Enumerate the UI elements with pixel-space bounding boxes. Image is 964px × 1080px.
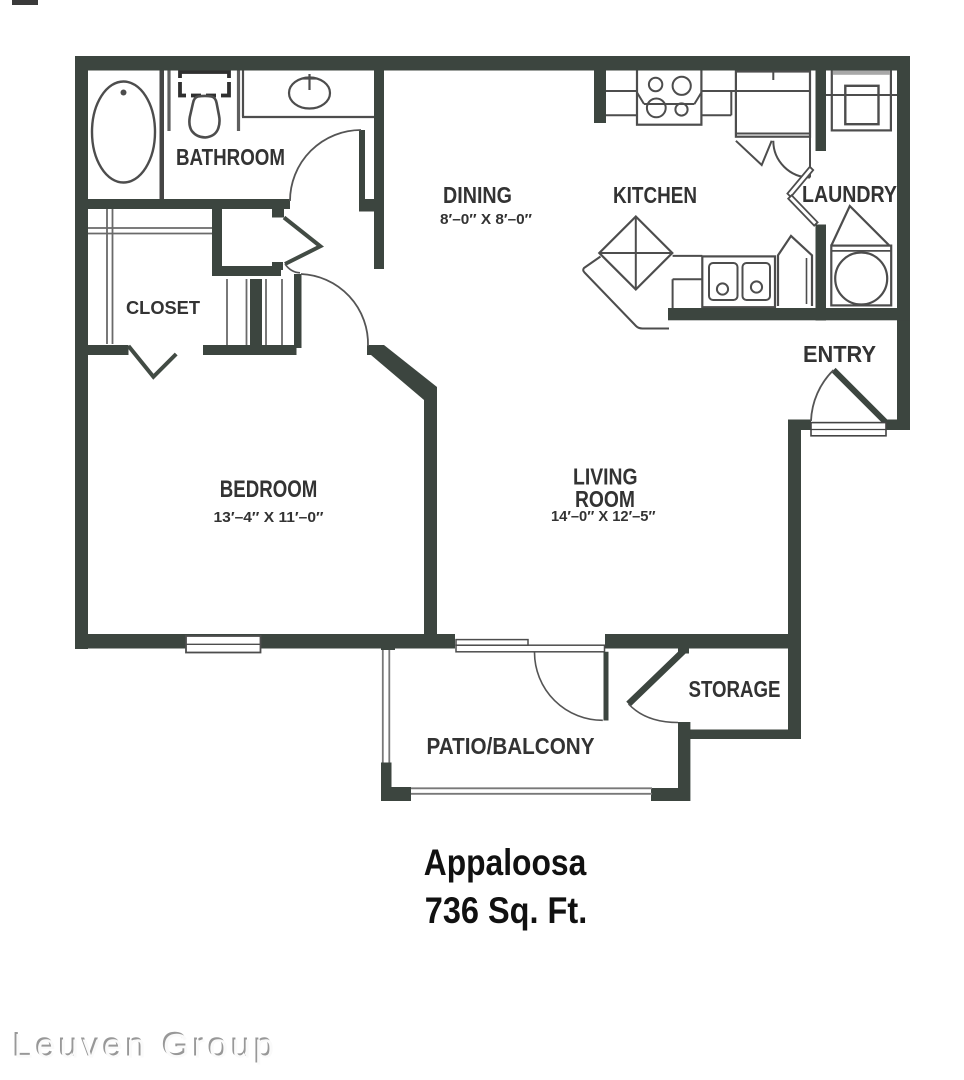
svg-text:LAUNDRY: LAUNDRY [802, 181, 897, 207]
svg-text:PATIO/BALCONY: PATIO/BALCONY [427, 733, 595, 759]
svg-text:CLOSET: CLOSET [126, 297, 201, 318]
svg-text:14′–0″ X 12′–5″: 14′–0″ X 12′–5″ [551, 508, 656, 525]
svg-text:BEDROOM: BEDROOM [220, 476, 317, 503]
svg-text:KITCHEN: KITCHEN [613, 182, 697, 208]
svg-text:8′–0″ X 8′–0″: 8′–0″ X 8′–0″ [440, 211, 532, 228]
svg-text:DINING: DINING [443, 182, 512, 208]
svg-text:ENTRY: ENTRY [803, 341, 876, 367]
svg-text:Appaloosa: Appaloosa [424, 842, 587, 883]
svg-text:BATHROOM: BATHROOM [176, 144, 285, 170]
svg-text:736 Sq. Ft.: 736 Sq. Ft. [425, 890, 588, 931]
svg-text:STORAGE: STORAGE [689, 676, 781, 702]
svg-text:13′–4″ X 11′–0″: 13′–4″ X 11′–0″ [214, 509, 324, 526]
svg-text:Leuven Group: Leuven Group [14, 1027, 278, 1065]
